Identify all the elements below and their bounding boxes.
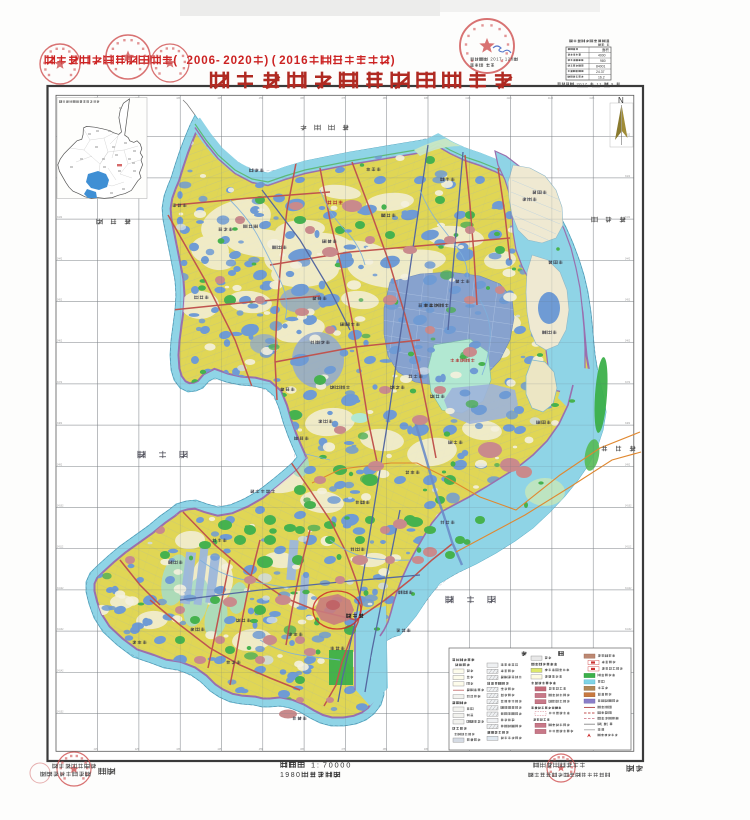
svg-text:3462: 3462	[57, 341, 63, 343]
svg-text:3452: 3452	[57, 300, 63, 302]
svg-text:0: 0	[194, 54, 200, 67]
svg-text:34112: 34112	[57, 547, 64, 549]
svg-text:-: -	[216, 54, 220, 67]
svg-text:34132: 34132	[57, 629, 64, 631]
svg-text:3452: 3452	[625, 300, 631, 302]
svg-text:6: 6	[301, 54, 308, 67]
svg-text:84001: 84001	[596, 65, 606, 69]
svg-text:34112: 34112	[625, 547, 632, 549]
svg-text:34122: 34122	[625, 588, 632, 590]
svg-text:3462: 3462	[625, 341, 631, 343]
svg-text:3442: 3442	[625, 258, 631, 260]
svg-text:): )	[264, 54, 268, 67]
svg-text:): )	[607, 722, 608, 726]
svg-text:7: 7	[323, 760, 327, 769]
svg-text:3482: 3482	[625, 423, 631, 425]
svg-text:3492: 3492	[57, 464, 63, 466]
svg-text:0: 0	[346, 760, 350, 769]
svg-text:3432: 3432	[625, 217, 631, 219]
svg-text:3422: 3422	[625, 176, 631, 178]
svg-text:2: 2	[238, 54, 244, 67]
svg-text:24.37: 24.37	[596, 70, 605, 74]
svg-text:3442: 3442	[57, 258, 63, 260]
svg-text:1: 1	[311, 760, 315, 769]
svg-text:2: 2	[279, 54, 285, 67]
svg-text:3472: 3472	[625, 382, 631, 384]
svg-text:34152: 34152	[57, 712, 64, 714]
svg-text:34142: 34142	[57, 670, 64, 672]
svg-text:0: 0	[286, 54, 292, 67]
svg-text:(: (	[272, 54, 276, 67]
svg-text:0: 0	[245, 54, 251, 67]
svg-text:0: 0	[329, 760, 333, 769]
svg-text:4135: 4135	[589, 98, 595, 100]
svg-text:面积: 面积	[602, 47, 609, 52]
svg-text::: :	[317, 760, 319, 769]
svg-text:34132: 34132	[625, 629, 632, 631]
svg-text:): )	[391, 54, 395, 67]
svg-text:4105: 4105	[465, 98, 471, 100]
svg-text:0: 0	[296, 772, 300, 779]
svg-text:3472: 3472	[57, 382, 63, 384]
svg-text:4115: 4115	[507, 98, 513, 100]
svg-text:6: 6	[209, 54, 216, 67]
svg-text:(: (	[173, 54, 177, 67]
svg-text:0: 0	[201, 54, 207, 67]
svg-text:0: 0	[231, 54, 237, 67]
svg-text:1: 1	[280, 772, 284, 779]
svg-text:3492: 3492	[625, 464, 631, 466]
svg-text:8: 8	[291, 772, 295, 779]
svg-text:9: 9	[285, 772, 289, 779]
svg-text:4000: 4000	[598, 54, 606, 58]
svg-text:1: 1	[294, 54, 301, 67]
svg-text:2: 2	[223, 54, 229, 67]
svg-text:34102: 34102	[57, 506, 64, 508]
svg-text:4125: 4125	[548, 98, 554, 100]
svg-text:0: 0	[335, 760, 339, 769]
svg-text:3432: 3432	[57, 217, 63, 219]
svg-text:16.2: 16.2	[598, 76, 605, 80]
svg-text:0: 0	[340, 760, 344, 769]
svg-text:N: N	[618, 96, 624, 105]
svg-text:34102: 34102	[625, 506, 632, 508]
svg-text:34122: 34122	[57, 588, 64, 590]
svg-text:980: 980	[600, 59, 606, 63]
svg-text:3482: 3482	[57, 423, 63, 425]
